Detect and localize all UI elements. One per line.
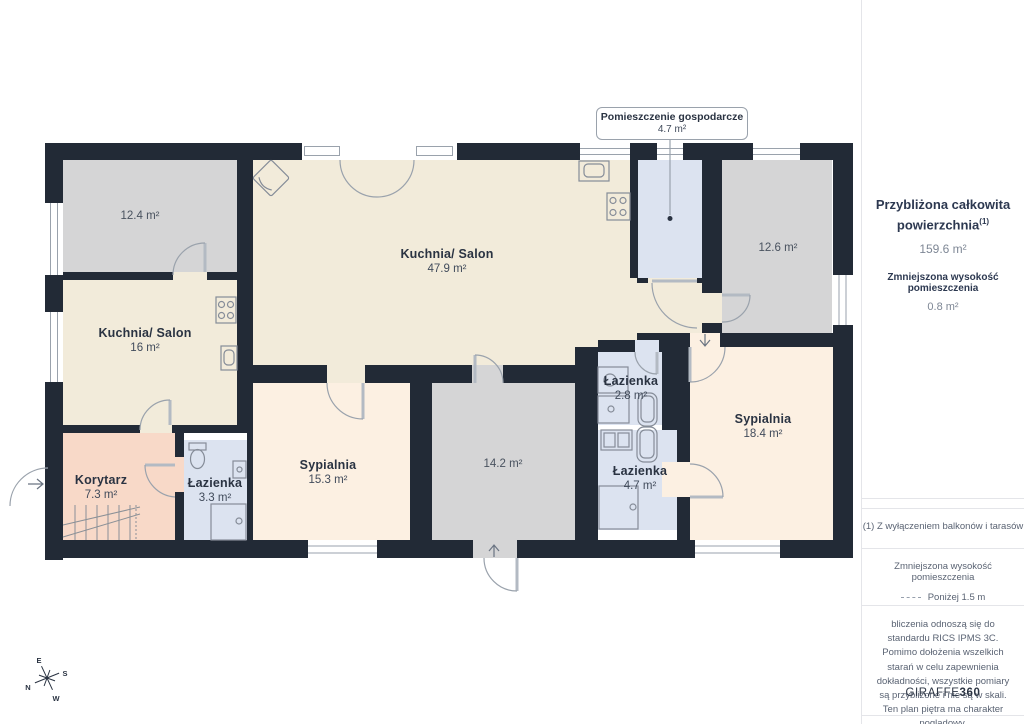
door-panel (304, 146, 340, 156)
room-pomieszczenie-gospodarcze (637, 160, 702, 278)
door-opening (690, 333, 720, 347)
wall-segment (237, 143, 253, 433)
divider (862, 498, 1024, 499)
divider (862, 548, 1024, 549)
compass-w: W (52, 694, 60, 703)
info-sidebar: Przybliżona całkowita powierzchnia(1) 15… (861, 0, 1024, 724)
footnote-text: (1) Z wyłączeniem balkonów i tarasów (862, 521, 1024, 532)
room-label-lazienka-2-8: Łazienka 2.8 m² (604, 374, 658, 402)
legend-title: Zmniejszona wysokość pomieszczenia (862, 561, 1024, 583)
room-label-14-2: 14.2 m² (484, 456, 523, 470)
wall-segment (637, 333, 833, 347)
room-area: 47.9 m² (400, 263, 493, 275)
room-label-12-6: 12.6 m² (759, 240, 798, 254)
door-opening (175, 457, 184, 492)
floor-plan: E S N W 12.4 m² Kuchnia/ Salon 16 m² Kuc… (0, 0, 861, 724)
room-area: 18.4 m² (735, 428, 792, 440)
divider (862, 508, 1024, 509)
window (695, 540, 780, 558)
room-area: 3.3 m² (188, 492, 242, 504)
room-area: 12.6 m² (759, 242, 798, 254)
compass-e: E (36, 656, 41, 665)
legend-block: Zmniejszona wysokość pomieszczenia Poniż… (862, 561, 1024, 603)
room-label-korytarz: Korytarz 7.3 m² (75, 473, 127, 501)
room-label-kuchnia-47-9: Kuchnia/ Salon 47.9 m² (400, 247, 493, 275)
total-area-label: Przybliżona całkowita powierzchnia(1) (862, 196, 1024, 233)
callout-pomieszczenie-gospodarcze: Pomieszczenie gospodarcze 4.7 m² (596, 107, 748, 140)
compass-s: S (62, 669, 67, 678)
room-label-lazienka-4-7: Łazienka 4.7 m² (613, 464, 667, 492)
window (580, 143, 630, 160)
compass-icon: E S N W (25, 656, 67, 703)
door-panel (416, 146, 453, 156)
room-name: Sypialnia (735, 412, 792, 426)
dashed-line-swatch (901, 597, 921, 598)
door-opening (635, 340, 659, 352)
door-opening (140, 425, 172, 433)
door-opening (173, 272, 207, 280)
room-name: Kuchnia/ Salon (98, 326, 191, 340)
room-area: 7.3 m² (75, 489, 127, 501)
wall-segment (410, 383, 432, 540)
room-name: Łazienka (613, 464, 667, 478)
entry-door (10, 468, 48, 506)
divider (862, 605, 1024, 606)
room-name: Korytarz (75, 473, 127, 487)
wall-segment (247, 433, 253, 540)
door-opening (702, 293, 722, 323)
brand-name-normal: GIRAFFE (905, 687, 959, 699)
wall-segment (630, 143, 638, 278)
room-area: 2.8 m² (604, 390, 658, 402)
wall-segment (237, 365, 590, 383)
corridor (630, 278, 702, 333)
wall-segment (575, 347, 598, 540)
room-area: 12.4 m² (121, 210, 160, 222)
wall-segment (662, 347, 690, 430)
callout-title: Pomieszczenie gospodarcze (599, 111, 745, 123)
room-label-sypialnia-18-4: Sypialnia 18.4 m² (735, 412, 792, 440)
callout-area: 4.7 m² (599, 124, 745, 135)
room-area: 4.7 m² (613, 480, 667, 492)
screenshot-root: E S N W 12.4 m² Kuchnia/ Salon 16 m² Kuc… (0, 0, 1024, 724)
brand-name-bold: 360 (960, 687, 981, 699)
giraffe360-logo: GIRAFFE360 (862, 687, 1024, 699)
legend-value: Poniżej 1.5 m (928, 592, 986, 603)
room-label-sypialnia-15-3: Sypialnia 15.3 m² (300, 458, 357, 486)
door-opening (648, 278, 697, 283)
footnote-marker: (1) (979, 217, 989, 226)
door-opening (327, 365, 365, 383)
room-label-12-4: 12.4 m² (121, 208, 160, 222)
room-sypialnia-18-4 (690, 347, 833, 540)
total-area-block: Przybliżona całkowita powierzchnia(1) 15… (862, 196, 1024, 313)
window (45, 203, 63, 275)
wall-segment (63, 272, 237, 280)
compass-n: N (25, 683, 30, 692)
wall-segment (833, 143, 853, 558)
total-area-value: 159.6 m² (862, 242, 1024, 256)
disclaimer-text: bliczenia odnoszą się do standardu RICS … (862, 618, 1024, 724)
door-opening (472, 365, 503, 383)
room-label-lazienka-3-3: Łazienka 3.3 m² (188, 476, 242, 504)
window (308, 540, 377, 558)
legend-row: Poniżej 1.5 m (862, 592, 1024, 603)
room-name: Łazienka (188, 476, 242, 490)
room-area: 15.3 m² (300, 474, 357, 486)
divider (862, 715, 1024, 716)
room-area: 16 m² (98, 342, 191, 354)
entrance-vestibule (473, 540, 517, 558)
window (45, 312, 63, 382)
room-area: 14.2 m² (484, 458, 523, 470)
window (753, 143, 800, 160)
reduced-height-label: Zmniejszona wysokość pomieszczenia (862, 272, 1024, 294)
room-name: Łazienka (604, 374, 658, 388)
reduced-height-value: 0.8 m² (862, 301, 1024, 313)
room-label-kuchnia-16: Kuchnia/ Salon 16 m² (98, 326, 191, 354)
room-name: Sypialnia (300, 458, 357, 472)
room-name: Kuchnia/ Salon (400, 247, 493, 261)
room-kuchnia-salon-16 (63, 280, 237, 433)
window (833, 275, 853, 325)
window (657, 143, 683, 160)
